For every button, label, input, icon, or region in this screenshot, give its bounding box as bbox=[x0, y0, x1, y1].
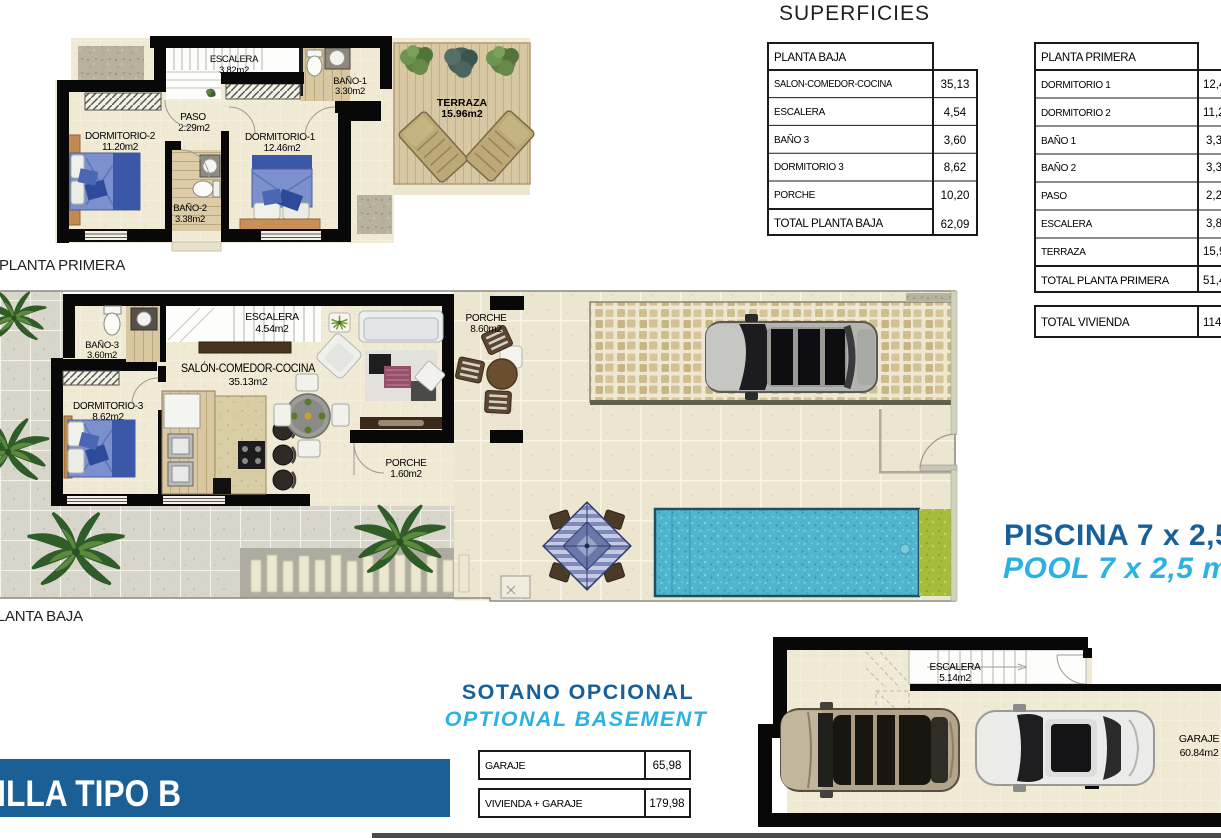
svg-text:PASO: PASO bbox=[180, 112, 206, 123]
svg-text:3.30m2: 3.30m2 bbox=[335, 86, 365, 97]
svg-text:114,50: 114,50 bbox=[1203, 317, 1221, 329]
svg-text:SUPERFICIES: SUPERFICIES bbox=[779, 2, 930, 25]
svg-text:3,60: 3,60 bbox=[944, 135, 966, 147]
svg-text:BAÑO 1: BAÑO 1 bbox=[1041, 134, 1077, 147]
svg-text:11.20m2: 11.20m2 bbox=[102, 142, 139, 153]
svg-text:VILLA TIPO B: VILLA TIPO B bbox=[0, 773, 181, 814]
svg-text:PORCHE: PORCHE bbox=[466, 313, 508, 324]
svg-text:ESCALERA: ESCALERA bbox=[210, 54, 259, 65]
svg-text:4,54: 4,54 bbox=[944, 107, 967, 119]
svg-text:PLANTA PRIMERA: PLANTA PRIMERA bbox=[1041, 52, 1136, 64]
svg-text:OPTIONAL BASEMENT: OPTIONAL BASEMENT bbox=[445, 707, 708, 731]
svg-text:3,82: 3,82 bbox=[1206, 218, 1221, 230]
svg-text:11,20: 11,20 bbox=[1203, 107, 1221, 119]
svg-text:PASO: PASO bbox=[1041, 191, 1067, 202]
svg-text:12,46: 12,46 bbox=[1203, 79, 1221, 91]
svg-text:60.84m2: 60.84m2 bbox=[1180, 747, 1219, 759]
svg-text:DORMITORIO-3: DORMITORIO-3 bbox=[73, 401, 144, 412]
svg-text:15,96: 15,96 bbox=[1203, 246, 1221, 258]
svg-text:POOL 7 x 2,5 m: POOL 7 x 2,5 m bbox=[1003, 552, 1221, 585]
svg-text:PLANTA BAJA: PLANTA BAJA bbox=[774, 52, 847, 64]
svg-text:15.96m2: 15.96m2 bbox=[441, 108, 483, 120]
svg-text:ESCALERA: ESCALERA bbox=[774, 107, 826, 118]
svg-text:3.38m2: 3.38m2 bbox=[175, 214, 205, 225]
svg-text:3.60m2: 3.60m2 bbox=[87, 350, 117, 361]
svg-text:3,38: 3,38 bbox=[1206, 162, 1221, 174]
svg-text:PLANTA BAJA: PLANTA BAJA bbox=[0, 608, 83, 625]
svg-text:TOTAL PLANTA PRIMERA: TOTAL PLANTA PRIMERA bbox=[1041, 275, 1170, 287]
svg-text:3,30: 3,30 bbox=[1206, 135, 1221, 147]
svg-text:BAÑO 2: BAÑO 2 bbox=[1041, 161, 1077, 174]
svg-text:VIVIENDA + GARAJE: VIVIENDA + GARAJE bbox=[485, 798, 583, 810]
svg-text:GARAJE: GARAJE bbox=[1179, 733, 1220, 745]
svg-text:10,20: 10,20 bbox=[941, 190, 970, 202]
svg-text:PLANTA PRIMERA: PLANTA PRIMERA bbox=[0, 257, 125, 274]
svg-text:ESCALERA: ESCALERA bbox=[930, 662, 982, 673]
svg-text:8.62m2: 8.62m2 bbox=[92, 412, 124, 423]
svg-text:35.13m2: 35.13m2 bbox=[229, 376, 268, 388]
svg-text:62,09: 62,09 bbox=[941, 219, 970, 231]
svg-text:51,41: 51,41 bbox=[1203, 275, 1221, 287]
svg-text:ESCALERA: ESCALERA bbox=[245, 311, 299, 323]
svg-text:8,62: 8,62 bbox=[944, 162, 966, 174]
svg-text:2,29: 2,29 bbox=[1206, 190, 1221, 202]
svg-text:SALÓN-COMEDOR-COCINA: SALÓN-COMEDOR-COCINA bbox=[181, 362, 316, 375]
svg-text:TERRAZA: TERRAZA bbox=[1041, 247, 1086, 258]
svg-text:PORCHE: PORCHE bbox=[774, 190, 816, 201]
svg-text:BAÑO 3: BAÑO 3 bbox=[774, 133, 810, 146]
svg-text:DORMITORIO-2: DORMITORIO-2 bbox=[85, 131, 156, 142]
svg-text:2.29m2: 2.29m2 bbox=[178, 123, 210, 134]
svg-text:4.54m2: 4.54m2 bbox=[255, 323, 289, 335]
svg-text:DORMITORIO 2: DORMITORIO 2 bbox=[1041, 108, 1111, 119]
svg-text:PORCHE: PORCHE bbox=[386, 458, 428, 469]
svg-text:35,13: 35,13 bbox=[941, 79, 970, 91]
svg-text:DORMITORIO 3: DORMITORIO 3 bbox=[774, 162, 844, 173]
svg-text:GARAJE: GARAJE bbox=[485, 760, 526, 772]
svg-text:179,98: 179,98 bbox=[649, 798, 684, 810]
svg-text:BAÑO-2: BAÑO-2 bbox=[173, 203, 207, 214]
svg-text:TOTAL PLANTA BAJA: TOTAL PLANTA BAJA bbox=[774, 218, 884, 230]
svg-text:SOTANO OPCIONAL: SOTANO OPCIONAL bbox=[462, 680, 694, 704]
svg-text:65,98: 65,98 bbox=[653, 760, 682, 772]
svg-text:1.60m2: 1.60m2 bbox=[390, 469, 422, 480]
svg-text:12.46m2: 12.46m2 bbox=[264, 143, 302, 154]
svg-text:DORMITORIO 1: DORMITORIO 1 bbox=[1041, 80, 1111, 91]
svg-text:PISCINA 7 x 2,5 m: PISCINA 7 x 2,5 m bbox=[1004, 519, 1221, 552]
svg-text:TOTAL VIVIENDA: TOTAL VIVIENDA bbox=[1041, 317, 1130, 329]
svg-text:8.60m2: 8.60m2 bbox=[470, 324, 502, 335]
svg-text:5.14m2: 5.14m2 bbox=[939, 673, 971, 684]
svg-text:SALON-COMEDOR-COCINA: SALON-COMEDOR-COCINA bbox=[774, 79, 893, 90]
svg-text:ESCALERA: ESCALERA bbox=[1041, 219, 1093, 230]
